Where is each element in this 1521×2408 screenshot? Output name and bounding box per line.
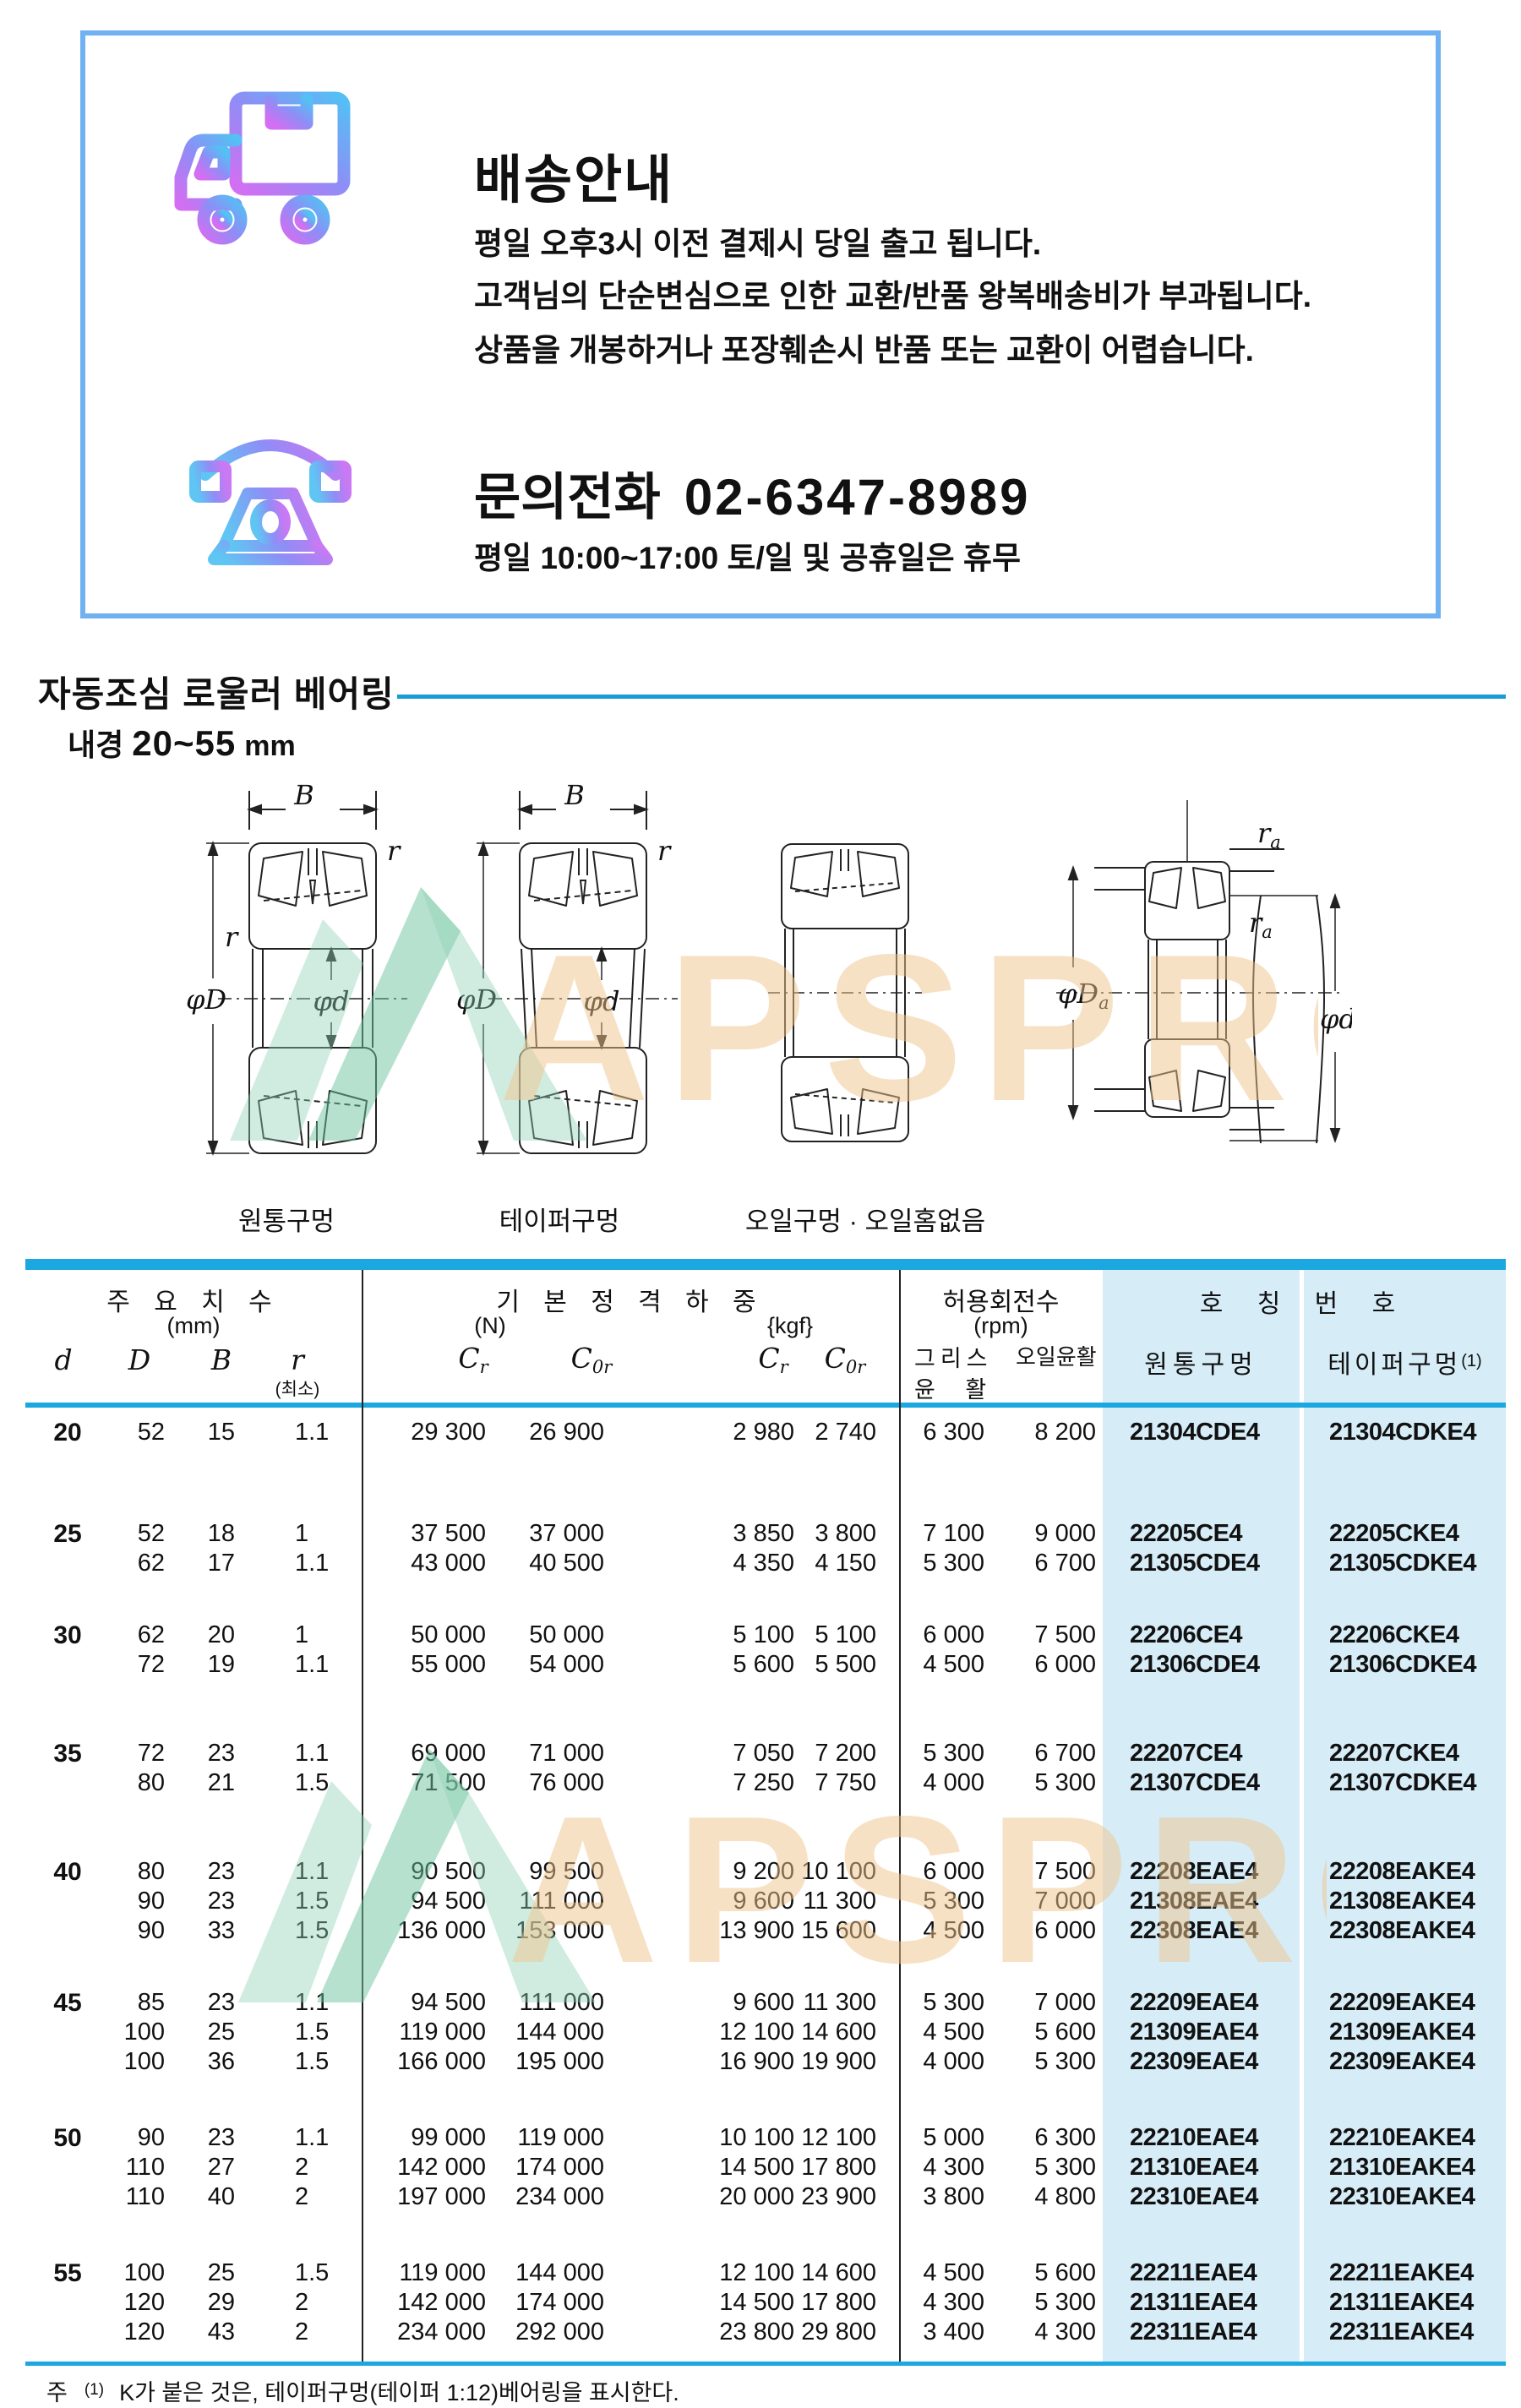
cell-c0rk: 17 800	[794, 2288, 876, 2318]
cell-c0rn: 111 000	[486, 1887, 604, 1916]
header-main-dims-unit: (mm)	[25, 1313, 362, 1339]
table-group-d50: 5090231.199 000119 00010 10012 1005 0006…	[25, 2123, 1506, 2212]
dim-phiD-2: φD	[456, 983, 497, 1016]
cell-D: 72	[110, 1739, 177, 1768]
cell-D: 120	[110, 2288, 177, 2318]
cell-D: 100	[110, 2018, 177, 2047]
table-row: 255218137 50037 0003 8503 8007 1009 0002…	[25, 1519, 1506, 1549]
table-row: 100361.5166 000195 00016 90019 9004 0005…	[25, 2047, 1506, 2077]
cell-r: 1.1	[237, 1549, 362, 1578]
cell-gr: 4 500	[876, 2018, 984, 2047]
cell-p2: 21304CDKE4	[1302, 1418, 1506, 1447]
header-sym-B: B	[204, 1343, 238, 1376]
cell-gr: 5 300	[876, 1887, 984, 1916]
table-group-d45: 4585231.194 500111 0009 60011 3005 3007 …	[25, 1988, 1506, 2077]
cell-oil: 7 000	[984, 1887, 1096, 1916]
cell-p1: 22205CE4	[1096, 1519, 1302, 1549]
cell-D: 52	[110, 1519, 177, 1549]
cell-D: 72	[110, 1650, 177, 1680]
cell-gr: 4 300	[876, 2288, 984, 2318]
cell-crn: 50 000	[362, 1621, 486, 1650]
cell-d: 45	[25, 1988, 110, 2018]
cell-d: 55	[25, 2258, 110, 2288]
cell-c0rk: 14 600	[794, 2258, 876, 2288]
table-row: 4585231.194 500111 0009 60011 3005 3007 …	[25, 1988, 1506, 2018]
cell-d	[25, 1768, 110, 1798]
cell-c0rn: 50 000	[486, 1621, 604, 1650]
cell-p1: 22208EAE4	[1096, 1857, 1302, 1887]
cell-c0rk: 14 600	[794, 2018, 876, 2047]
cell-r: 1	[237, 1519, 362, 1549]
cell-crn: 29 300	[362, 1418, 486, 1447]
footnote-sup: (1)	[84, 2381, 104, 2399]
cell-p2: 22205CKE4	[1302, 1519, 1506, 1549]
cell-d	[25, 2318, 110, 2347]
cell-oil: 6 700	[984, 1549, 1096, 1578]
cell-crk: 3 850	[604, 1519, 794, 1549]
cell-crk: 7 050	[604, 1739, 794, 1768]
cell-gr: 4 000	[876, 1768, 984, 1798]
cell-B: 33	[177, 1916, 237, 1946]
cell-oil: 6 000	[984, 1916, 1096, 1946]
cell-c0rn: 54 000	[486, 1650, 604, 1680]
cell-p2: 21310EAKE4	[1302, 2153, 1506, 2182]
cell-crk: 14 500	[604, 2288, 794, 2318]
bore-label: 내경	[68, 727, 123, 762]
cell-oil: 6 000	[984, 1650, 1096, 1680]
cell-crn: 119 000	[362, 2018, 486, 2047]
dim-B-1: B	[293, 779, 314, 811]
cell-D: 80	[110, 1857, 177, 1887]
cell-gr: 3 800	[876, 2182, 984, 2212]
cell-p2: 22308EAKE4	[1302, 1916, 1506, 1946]
cell-D: 120	[110, 2318, 177, 2347]
cell-oil: 7 000	[984, 1988, 1096, 2018]
phone-label: 문의전화	[474, 469, 661, 526]
cell-c0rn: 99 500	[486, 1857, 604, 1887]
cell-crn: 234 000	[362, 2318, 486, 2347]
cell-r: 2	[237, 2318, 362, 2347]
header-oil: 오일윤활	[1016, 1340, 1097, 1371]
cell-r: 1.5	[237, 2047, 362, 2077]
cell-r: 1.5	[237, 1916, 362, 1946]
delivery-line-3: 상품을 개봉하거나 포장훼손시 반품 또는 교환이 어렵습니다.	[474, 324, 1254, 370]
cell-gr: 4 500	[876, 1916, 984, 1946]
cell-B: 19	[177, 1650, 237, 1680]
table-row: 90331.5136 000153 00013 90015 6004 5006 …	[25, 1916, 1506, 1946]
cell-c0rk: 3 800	[794, 1519, 876, 1549]
cell-r: 1.1	[237, 1988, 362, 2018]
delivery-line-1: 평일 오후3시 이전 결제시 당일 출고 됩니다.	[474, 218, 1041, 264]
bore-range-line: 내경 20~55 mm	[68, 721, 296, 765]
diagram-tapered-bore: B r φD φd	[439, 777, 718, 1183]
cell-gr: 4 500	[876, 2258, 984, 2288]
cell-crk: 12 100	[604, 2258, 794, 2288]
cell-c0rk: 7 750	[794, 1768, 876, 1798]
cell-B: 25	[177, 2258, 237, 2288]
header-grease-2: 윤 활	[914, 1371, 998, 1404]
cell-p1: 22211EAE4	[1096, 2258, 1302, 2288]
cell-c0rn: 76 000	[486, 1768, 604, 1798]
delivery-info-box: 배송안내 평일 오후3시 이전 결제시 당일 출고 됩니다. 고객님의 단순변심…	[80, 30, 1441, 618]
cell-gr: 4 000	[876, 2047, 984, 2077]
cell-c0rn: 71 000	[486, 1739, 604, 1768]
dim-phid-1: φd	[313, 985, 350, 1017]
cell-crn: 119 000	[362, 2258, 486, 2288]
cell-p2: 22206CKE4	[1302, 1621, 1506, 1650]
cell-p2: 22311EAKE4	[1302, 2318, 1506, 2347]
table-row: 4080231.190 50099 5009 20010 1006 0007 5…	[25, 1857, 1506, 1887]
cell-B: 15	[177, 1418, 237, 1447]
cell-B: 17	[177, 1549, 237, 1578]
cell-r: 1.1	[237, 1857, 362, 1887]
header-grease-1: 그리스	[914, 1340, 993, 1373]
table-footnote: 주(1)K가 붙은 것은, 테이퍼구멍(테이퍼 1:12)베어링을 표시한다.	[46, 2374, 679, 2407]
cell-r: 1.5	[237, 2018, 362, 2047]
cell-crn: 142 000	[362, 2153, 486, 2182]
cell-oil: 7 500	[984, 1857, 1096, 1887]
cell-p1: 21310EAE4	[1096, 2153, 1302, 2182]
table-group-d20: 2052151.129 30026 9002 9802 7406 3008 20…	[25, 1418, 1506, 1447]
cell-p1: 22210EAE4	[1096, 2123, 1302, 2153]
table-top-rule	[25, 1259, 1506, 1270]
cell-crn: 71 500	[362, 1768, 486, 1798]
cell-p2: 22208EAKE4	[1302, 1857, 1506, 1887]
dim-ra-1: ra	[1257, 817, 1281, 853]
cell-p2: 21307CDKE4	[1302, 1768, 1506, 1798]
phone-hours: 평일 10:00~17:00 토/일 및 공휴일은 휴무	[474, 532, 1021, 578]
cell-r: 1.1	[237, 2123, 362, 2153]
header-sym-D: D	[123, 1343, 156, 1376]
cell-crk: 5 100	[604, 1621, 794, 1650]
cell-crk: 9 600	[604, 1988, 794, 2018]
cell-B: 29	[177, 2288, 237, 2318]
cell-crn: 69 000	[362, 1739, 486, 1768]
cell-c0rn: 174 000	[486, 2288, 604, 2318]
cell-crk: 14 500	[604, 2153, 794, 2182]
table-group-d30: 306220150 00050 0005 1005 1006 0007 5002…	[25, 1621, 1506, 1680]
cell-c0rk: 19 900	[794, 2047, 876, 2077]
table-row: 120292142 000174 00014 50017 8004 3005 3…	[25, 2288, 1506, 2318]
cell-c0rn: 195 000	[486, 2047, 604, 2077]
diagram-mounted-shaft: ra ra φDa φda	[1048, 798, 1352, 1179]
cell-p1: 21306CDE4	[1096, 1650, 1302, 1680]
dim-r-1b: r	[225, 921, 239, 953]
cell-D: 90	[110, 1887, 177, 1916]
cell-d	[25, 2018, 110, 2047]
dim-ra-2: ra	[1249, 907, 1273, 942]
header-part-cylindrical: 원통구멍	[1103, 1343, 1300, 1381]
cell-oil: 9 000	[984, 1519, 1096, 1549]
cell-c0rn: 40 500	[486, 1549, 604, 1578]
table-group-d40: 4080231.190 50099 5009 20010 1006 0007 5…	[25, 1857, 1506, 1946]
cell-crk: 20 000	[604, 2182, 794, 2212]
cell-r: 1.5	[237, 1768, 362, 1798]
cell-crk: 2 980	[604, 1418, 794, 1447]
cell-r: 1.1	[237, 1650, 362, 1680]
dim-phiD-1: φD	[186, 983, 226, 1016]
cell-c0rk: 5 500	[794, 1650, 876, 1680]
header-unit-n: (N)	[465, 1313, 515, 1339]
header-sym-cr-n: Cr	[444, 1342, 503, 1377]
cell-c0rk: 11 300	[794, 1988, 876, 2018]
cell-p1: 22308EAE4	[1096, 1916, 1302, 1946]
cell-d	[25, 1650, 110, 1680]
cell-D: 90	[110, 2123, 177, 2153]
cell-crn: 94 500	[362, 1887, 486, 1916]
cell-D: 80	[110, 1768, 177, 1798]
cell-d: 30	[25, 1621, 110, 1650]
header-sym-c0r-n: C0r	[562, 1342, 621, 1377]
cell-oil: 5 300	[984, 2153, 1096, 2182]
cell-D: 90	[110, 1916, 177, 1946]
cell-crn: 136 000	[362, 1916, 486, 1946]
cell-gr: 5 300	[876, 1988, 984, 2018]
cell-r: 2	[237, 2153, 362, 2182]
bore-unit: mm	[244, 730, 295, 762]
cell-oil: 5 300	[984, 1768, 1096, 1798]
cell-crk: 23 800	[604, 2318, 794, 2347]
cell-d	[25, 1549, 110, 1578]
cell-gr: 5 300	[876, 1739, 984, 1768]
cell-B: 23	[177, 1739, 237, 1768]
cell-D: 62	[110, 1549, 177, 1578]
cell-D: 110	[110, 2182, 177, 2212]
cell-d	[25, 1916, 110, 1946]
cell-gr: 6 000	[876, 1857, 984, 1887]
cell-d	[25, 2047, 110, 2077]
cell-gr: 6 000	[876, 1621, 984, 1650]
diagram-oil-hole	[765, 832, 925, 1153]
cell-c0rk: 17 800	[794, 2153, 876, 2182]
cell-gr: 3 400	[876, 2318, 984, 2347]
cell-d: 50	[25, 2123, 110, 2153]
bore-type-oilhole: 오일구멍 · 오일홈없음	[696, 1200, 1034, 1238]
cell-B: 23	[177, 1988, 237, 2018]
product-info-page: 배송안내 평일 오후3시 이전 결제시 당일 출고 됩니다. 고객님의 단순변심…	[0, 0, 1521, 2408]
cell-B: 18	[177, 1519, 237, 1549]
table-group-d55: 55100251.5119 000144 00012 10014 6004 50…	[25, 2258, 1506, 2347]
header-sym-cr-kgf: Cr	[744, 1342, 803, 1377]
table-row: 110402197 000234 00020 00023 9003 8004 8…	[25, 2182, 1506, 2212]
cell-c0rn: 26 900	[486, 1418, 604, 1447]
bore-type-tapered: 테이퍼구멍	[475, 1200, 644, 1238]
header-r-min-note: (최소)	[264, 1376, 331, 1401]
bore-type-cylindrical: 원통구멍	[219, 1200, 354, 1238]
cell-B: 23	[177, 1887, 237, 1916]
table-group-d25: 255218137 50037 0003 8503 8007 1009 0002…	[25, 1519, 1506, 1578]
cell-p1: 21305CDE4	[1096, 1549, 1302, 1578]
cell-crk: 13 900	[604, 1916, 794, 1946]
cell-oil: 5 300	[984, 2288, 1096, 2318]
cell-p2: 21306CDKE4	[1302, 1650, 1506, 1680]
dim-B-2: B	[564, 779, 585, 811]
cell-p1: 22309EAE4	[1096, 2047, 1302, 2077]
cell-B: 23	[177, 2123, 237, 2153]
cell-d	[25, 2288, 110, 2318]
cell-r: 1.5	[237, 1887, 362, 1916]
cell-crn: 94 500	[362, 1988, 486, 2018]
cell-p1: 22311EAE4	[1096, 2318, 1302, 2347]
bore-range: 20~55	[132, 723, 236, 763]
cell-p1: 22310EAE4	[1096, 2182, 1302, 2212]
cell-crk: 16 900	[604, 2047, 794, 2077]
cell-d: 20	[25, 1418, 110, 1447]
cell-r: 1	[237, 1621, 362, 1650]
cell-B: 20	[177, 1621, 237, 1650]
dim-r-1a: r	[387, 835, 401, 867]
cell-p2: 22210EAKE4	[1302, 2123, 1506, 2153]
cell-r: 2	[237, 2182, 362, 2212]
table-row: 2052151.129 30026 9002 9802 7406 3008 20…	[25, 1418, 1506, 1447]
cell-crn: 99 000	[362, 2123, 486, 2153]
cell-B: 21	[177, 1768, 237, 1798]
cell-oil: 6 700	[984, 1739, 1096, 1768]
table-row: 306220150 00050 0005 1005 1006 0007 5002…	[25, 1621, 1506, 1650]
header-sym-d: d	[46, 1343, 80, 1376]
cell-crn: 55 000	[362, 1650, 486, 1680]
cell-B: 40	[177, 2182, 237, 2212]
cell-p1: 22209EAE4	[1096, 1988, 1302, 2018]
header-unit-kgf: {kgf}	[752, 1313, 828, 1339]
cell-p2: 21311EAKE4	[1302, 2288, 1506, 2318]
cell-c0rk: 29 800	[794, 2318, 876, 2347]
cell-B: 25	[177, 2018, 237, 2047]
table-row: 100251.5119 000144 00012 10014 6004 5005…	[25, 2018, 1506, 2047]
cell-crn: 142 000	[362, 2288, 486, 2318]
table-row: 90231.594 500111 0009 60011 3005 3007 00…	[25, 1887, 1506, 1916]
cell-c0rn: 144 000	[486, 2018, 604, 2047]
cell-c0rk: 2 740	[794, 1418, 876, 1447]
cell-oil: 4 800	[984, 2182, 1096, 2212]
delivery-line-2: 고객님의 단순변심으로 인한 교환/반품 왕복배송비가 부과됩니다.	[474, 270, 1311, 316]
cell-gr: 4 500	[876, 1650, 984, 1680]
cell-c0rk: 7 200	[794, 1739, 876, 1768]
cell-d: 40	[25, 1857, 110, 1887]
cell-p2: 21308EAKE4	[1302, 1887, 1506, 1916]
cell-c0rn: 119 000	[486, 2123, 604, 2153]
cell-r: 2	[237, 2288, 362, 2318]
cell-B: 43	[177, 2318, 237, 2347]
cell-c0rn: 292 000	[486, 2318, 604, 2347]
cell-oil: 5 300	[984, 2047, 1096, 2077]
cell-gr: 4 300	[876, 2153, 984, 2182]
dim-phid-2: φd	[584, 985, 620, 1017]
table-row: 80211.571 50076 0007 2507 7504 0005 3002…	[25, 1768, 1506, 1798]
table-row: 62171.143 00040 5004 3504 1505 3006 7002…	[25, 1549, 1506, 1578]
cell-crn: 37 500	[362, 1519, 486, 1549]
cell-p1: 21308EAE4	[1096, 1887, 1302, 1916]
cell-r: 1.5	[237, 2258, 362, 2288]
cell-c0rk: 12 100	[794, 2123, 876, 2153]
dim-r-2: r	[657, 835, 672, 867]
cell-c0rn: 37 000	[486, 1519, 604, 1549]
header-sym-c0r-kgf: C0r	[815, 1342, 875, 1377]
cell-D: 85	[110, 1988, 177, 2018]
phone-number: 02-6347-8989	[684, 469, 1031, 526]
dim-phiDa: φDa	[1058, 978, 1109, 1013]
cell-B: 27	[177, 2153, 237, 2182]
section-rule	[397, 695, 1506, 699]
bearing-spec-table: 주 요 치 수 (mm) d D B r (최소) 기 본 정 격 하 중 (N…	[25, 1259, 1506, 2366]
cell-crn: 197 000	[362, 2182, 486, 2212]
cell-d	[25, 2153, 110, 2182]
cell-p2: 21309EAKE4	[1302, 2018, 1506, 2047]
cell-oil: 5 600	[984, 2018, 1096, 2047]
cell-oil: 8 200	[984, 1418, 1096, 1447]
table-bottom-rule	[25, 2362, 1506, 2366]
cell-p2: 22309EAKE4	[1302, 2047, 1506, 2077]
table-row: 5090231.199 000119 00010 10012 1005 0006…	[25, 2123, 1506, 2153]
cell-D: 52	[110, 1418, 177, 1447]
cell-c0rk: 4 150	[794, 1549, 876, 1578]
cell-p1: 21304CDE4	[1096, 1418, 1302, 1447]
truck-icon	[170, 84, 364, 262]
cell-c0rk: 11 300	[794, 1887, 876, 1916]
header-sym-r: r	[281, 1343, 314, 1376]
cell-gr: 6 300	[876, 1418, 984, 1447]
table-group-d35: 3572231.169 00071 0007 0507 2005 3006 70…	[25, 1739, 1506, 1798]
cell-r: 1.1	[237, 1418, 362, 1447]
cell-p1: 21311EAE4	[1096, 2288, 1302, 2318]
table-body: 2052151.129 30026 9002 9802 7406 3008 20…	[25, 1408, 1506, 2362]
header-part-number: 호 칭 번 호	[1103, 1283, 1506, 1320]
cell-crk: 9 600	[604, 1887, 794, 1916]
cell-p1: 22207CE4	[1096, 1739, 1302, 1768]
cell-crk: 5 600	[604, 1650, 794, 1680]
cell-oil: 6 300	[984, 2123, 1096, 2153]
cell-D: 62	[110, 1621, 177, 1650]
cell-D: 100	[110, 2047, 177, 2077]
cell-crk: 10 100	[604, 2123, 794, 2153]
cell-c0rk: 15 600	[794, 1916, 876, 1946]
cell-p1: 21309EAE4	[1096, 2018, 1302, 2047]
cell-c0rn: 153 000	[486, 1916, 604, 1946]
cell-gr: 5 000	[876, 2123, 984, 2153]
cell-d: 25	[25, 1519, 110, 1549]
cell-gr: 5 300	[876, 1549, 984, 1578]
footnote-prefix: 주	[46, 2380, 68, 2405]
cell-p1: 22206CE4	[1096, 1621, 1302, 1650]
cell-B: 36	[177, 2047, 237, 2077]
cell-crn: 166 000	[362, 2047, 486, 2077]
cell-c0rk: 23 900	[794, 2182, 876, 2212]
diagram-cylindrical-bore: B r r φD φd	[169, 777, 448, 1183]
cell-crk: 4 350	[604, 1549, 794, 1578]
delivery-title: 배송안내	[474, 137, 673, 213]
cell-B: 23	[177, 1857, 237, 1887]
cell-p2: 21305CDKE4	[1302, 1549, 1506, 1578]
cell-c0rn: 144 000	[486, 2258, 604, 2288]
cell-crk: 7 250	[604, 1768, 794, 1798]
cell-crn: 90 500	[362, 1857, 486, 1887]
cell-d	[25, 1887, 110, 1916]
cell-p2: 22310EAKE4	[1302, 2182, 1506, 2212]
cell-c0rk: 10 100	[794, 1857, 876, 1887]
cell-p2: 22209EAKE4	[1302, 1988, 1506, 2018]
cell-gr: 7 100	[876, 1519, 984, 1549]
cell-c0rn: 111 000	[486, 1988, 604, 2018]
cell-crn: 43 000	[362, 1549, 486, 1578]
header-part-tapered: 테이퍼구멍(1)	[1304, 1343, 1506, 1381]
cell-p1: 21307CDE4	[1096, 1768, 1302, 1798]
table-row: 72191.155 00054 0005 6005 5004 5006 0002…	[25, 1650, 1506, 1680]
cell-c0rn: 234 000	[486, 2182, 604, 2212]
cell-c0rn: 174 000	[486, 2153, 604, 2182]
cell-D: 100	[110, 2258, 177, 2288]
cell-oil: 4 300	[984, 2318, 1096, 2347]
table-row: 110272142 000174 00014 50017 8004 3005 3…	[25, 2153, 1506, 2182]
